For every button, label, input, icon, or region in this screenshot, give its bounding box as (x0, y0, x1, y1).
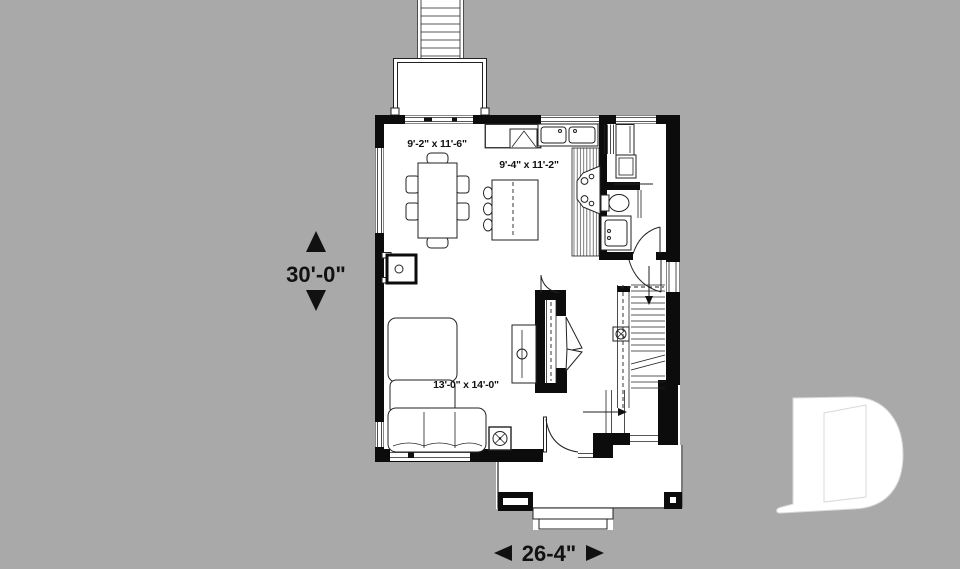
fireplace (382, 253, 416, 284)
refrigerator (616, 125, 634, 156)
brand-logo-d (777, 397, 903, 513)
kitchen-island (484, 180, 539, 240)
island-stool (484, 219, 493, 231)
dining-table (418, 163, 457, 238)
dining-chair (406, 203, 419, 220)
floor-plan-canvas: 9'-2" x 11'-6" 9'-4" x 11'-2" 13'-0" x 1… (0, 0, 960, 569)
island-stool (484, 187, 493, 199)
dining-chair (456, 176, 469, 193)
electrical-panel-icon (489, 427, 511, 450)
dining-chair (456, 203, 469, 220)
vanity-sink (601, 216, 631, 250)
kitchen-sink (538, 124, 598, 146)
porch-step (539, 519, 607, 529)
dining-chair (427, 237, 448, 248)
window-living-left (376, 422, 384, 447)
window-top-right (616, 116, 656, 124)
window-stair-right (667, 262, 680, 292)
room-label-kitchen: 9'-4" x 11'-2" (499, 159, 559, 171)
window-dining-top (405, 116, 473, 124)
room-label-living: 13'-0" x 14'-0" (433, 379, 499, 391)
window-dining-left (376, 148, 384, 233)
window-kitchen-sink (541, 116, 599, 124)
tv-console (512, 325, 536, 383)
dining-chair (427, 153, 448, 164)
toilet (601, 195, 629, 212)
depth-value: 30'-0" (286, 262, 346, 287)
porch-step (533, 508, 613, 519)
width-value: 26-4" (522, 541, 576, 566)
room-label-dining: 9'-2" x 11'-6" (407, 138, 467, 150)
island-stool (484, 203, 493, 215)
dining-chair (406, 176, 419, 193)
front-door-sidelite (578, 452, 593, 460)
window-entry (630, 434, 658, 444)
